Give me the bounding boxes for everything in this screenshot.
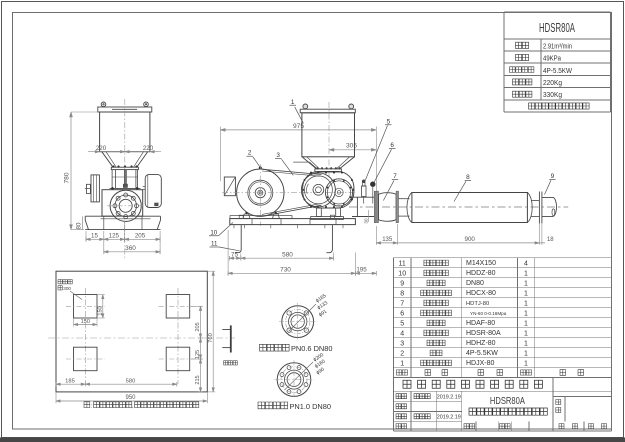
svg-text:1: 1 — [524, 331, 528, 338]
svg-text:1: 1 — [524, 311, 528, 318]
svg-text:195: 195 — [356, 266, 367, 273]
svg-text:220: 220 — [96, 145, 107, 152]
svg-text:5: 5 — [400, 321, 404, 328]
svg-text:HDSR-80A: HDSR-80A — [466, 330, 501, 337]
svg-text:7: 7 — [400, 301, 404, 308]
svg-text:HDHZ-80: HDHZ-80 — [466, 340, 496, 347]
svg-text:220Kg: 220Kg — [543, 78, 562, 87]
svg-text:9: 9 — [551, 173, 555, 180]
svg-text:900: 900 — [465, 236, 476, 243]
svg-text:1: 1 — [524, 321, 528, 328]
svg-text:9: 9 — [400, 281, 404, 288]
svg-text:2: 2 — [248, 150, 252, 157]
svg-text:HDAF-80: HDAF-80 — [466, 320, 495, 327]
svg-text:18: 18 — [547, 237, 554, 243]
svg-text:M14X150: M14X150 — [466, 260, 496, 267]
svg-text:1: 1 — [524, 361, 528, 368]
svg-text:HDTJ-80: HDTJ-80 — [466, 301, 489, 307]
svg-text:185: 185 — [65, 378, 75, 384]
svg-text:1: 1 — [524, 281, 528, 288]
svg-text:330Kg: 330Kg — [543, 90, 562, 99]
svg-text:8: 8 — [400, 291, 404, 298]
svg-text:580: 580 — [126, 378, 136, 384]
svg-text:HDJX-80: HDJX-80 — [466, 360, 495, 367]
svg-text:4: 4 — [524, 261, 528, 268]
svg-text:8: 8 — [466, 174, 470, 181]
svg-text:2019.2.19: 2019.2.19 — [437, 415, 461, 421]
svg-text:1: 1 — [400, 361, 404, 368]
svg-text:15: 15 — [91, 233, 98, 240]
svg-text:3: 3 — [276, 152, 280, 159]
svg-text:6: 6 — [390, 142, 394, 149]
svg-text:150: 150 — [81, 319, 90, 325]
svg-text:HDSR80A: HDSR80A — [539, 21, 575, 35]
svg-text:DN80: DN80 — [466, 280, 484, 287]
svg-text:150: 150 — [98, 306, 104, 315]
svg-text:HDDZ-80: HDDZ-80 — [466, 270, 496, 277]
svg-text:1: 1 — [291, 99, 295, 106]
svg-text:4P-5.5KW: 4P-5.5KW — [466, 350, 498, 357]
svg-text:950: 950 — [125, 395, 136, 401]
svg-text:YN-60 0-0.16Mpa: YN-60 0-0.16Mpa — [470, 311, 507, 316]
svg-text:10: 10 — [210, 229, 217, 236]
svg-text:2019.2.19: 2019.2.19 — [437, 395, 461, 401]
svg-text:135: 135 — [382, 237, 393, 243]
svg-text:300: 300 — [63, 286, 71, 291]
svg-text:11: 11 — [211, 241, 218, 248]
svg-text:220: 220 — [143, 145, 154, 152]
svg-text:4: 4 — [400, 331, 404, 338]
svg-text:205: 205 — [135, 233, 146, 240]
svg-text:205: 205 — [195, 322, 201, 331]
svg-text:4P-5.5KW: 4P-5.5KW — [543, 66, 572, 75]
svg-text:10: 10 — [398, 271, 406, 278]
svg-text:1: 1 — [524, 291, 528, 298]
svg-text:2.91m³/min: 2.91m³/min — [543, 41, 572, 50]
svg-text:1: 1 — [524, 341, 528, 348]
svg-text:760: 760 — [208, 333, 214, 343]
svg-text:75: 75 — [231, 251, 238, 258]
svg-text:11: 11 — [399, 261, 406, 268]
svg-text:80: 80 — [76, 222, 83, 229]
svg-text:1: 1 — [524, 271, 528, 278]
svg-text:7: 7 — [393, 173, 397, 180]
svg-text:3: 3 — [400, 341, 404, 348]
svg-text:215: 215 — [195, 375, 201, 384]
svg-text:5: 5 — [387, 119, 391, 126]
svg-text:730: 730 — [280, 266, 291, 273]
svg-text:125: 125 — [109, 233, 120, 240]
svg-text:580: 580 — [282, 251, 293, 258]
svg-text:1: 1 — [524, 351, 528, 358]
svg-text:360: 360 — [125, 245, 136, 252]
svg-text:49KPa: 49KPa — [543, 54, 561, 63]
svg-text:975: 975 — [293, 123, 304, 130]
svg-text:305: 305 — [346, 143, 357, 150]
svg-text:PN1.0 DN80: PN1.0 DN80 — [290, 402, 332, 411]
svg-text:PN0.6 DN80: PN0.6 DN80 — [291, 344, 333, 353]
svg-text:HDCX-80: HDCX-80 — [466, 290, 496, 297]
svg-text:2: 2 — [400, 351, 404, 358]
svg-text:30: 30 — [364, 218, 369, 224]
svg-text:6: 6 — [400, 311, 404, 318]
svg-text:125: 125 — [195, 350, 201, 359]
svg-text:HDSR80A: HDSR80A — [490, 395, 525, 407]
svg-text:780: 780 — [64, 172, 71, 183]
svg-text:1: 1 — [524, 301, 528, 308]
